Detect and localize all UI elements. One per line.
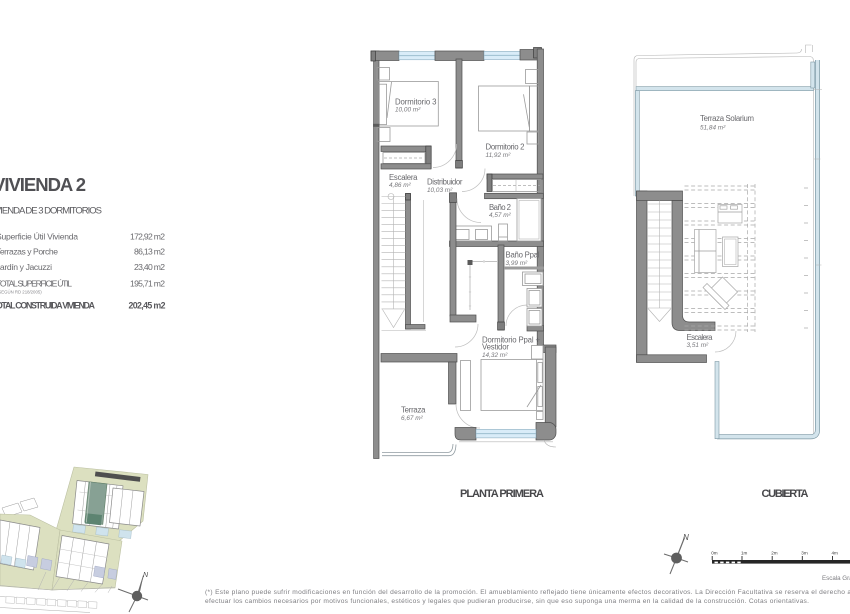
svg-text:3,51 m²: 3,51 m² bbox=[687, 342, 710, 349]
svg-text:Escala Gráfica: Escala Gráfica bbox=[822, 575, 850, 582]
svg-text:VIVIENDA DE 3 DORMITORIOS: VIVIENDA DE 3 DORMITORIOS bbox=[0, 206, 102, 217]
svg-text:Escalera: Escalera bbox=[687, 333, 714, 342]
svg-text:(*) Este plano puede sufrir mo: (*) Este plano puede sufrir modificacion… bbox=[205, 589, 850, 596]
svg-text:23,40 m2: 23,40 m2 bbox=[134, 262, 165, 272]
svg-text:TOTAL CONSTRUIDA VIVIENDA: TOTAL CONSTRUIDA VIVIENDA bbox=[0, 301, 96, 311]
svg-text:2m: 2m bbox=[771, 551, 778, 556]
svg-text:86,13 m2: 86,13 m2 bbox=[134, 247, 165, 257]
svg-text:202,45 m2: 202,45 m2 bbox=[129, 301, 166, 311]
svg-text:TOTAL SUPERFICIE ÚTIL: TOTAL SUPERFICIE ÚTIL bbox=[0, 279, 72, 289]
svg-text:172,92 m2: 172,92 m2 bbox=[130, 232, 165, 242]
svg-text:N: N bbox=[683, 533, 689, 542]
svg-text:Jardín y Jacuzzi: Jardín y Jacuzzi bbox=[0, 262, 52, 272]
svg-text:VIVIENDA 2: VIVIENDA 2 bbox=[0, 174, 86, 195]
svg-text:3m: 3m bbox=[801, 551, 808, 556]
svg-text:PLANTA PRIMERA: PLANTA PRIMERA bbox=[460, 488, 544, 500]
svg-text:6,67 m²: 6,67 m² bbox=[401, 415, 424, 422]
svg-text:Baño 2: Baño 2 bbox=[489, 203, 511, 212]
svg-text:Escalera: Escalera bbox=[389, 173, 418, 182]
svg-text:51,84 m²: 51,84 m² bbox=[700, 125, 726, 132]
svg-text:11,92 m²: 11,92 m² bbox=[486, 152, 512, 159]
svg-text:(SEGÚN RD 218/2005): (SEGÚN RD 218/2005) bbox=[0, 290, 42, 295]
svg-text:4,86 m²: 4,86 m² bbox=[389, 182, 412, 189]
svg-text:Terrazas y Porche: Terrazas y Porche bbox=[0, 247, 58, 257]
svg-text:14,32 m²: 14,32 m² bbox=[482, 352, 508, 359]
svg-text:10,00 m²: 10,00 m² bbox=[395, 107, 421, 114]
svg-text:Dormitorio 2: Dormitorio 2 bbox=[486, 143, 525, 152]
svg-text:Vestidor: Vestidor bbox=[482, 343, 509, 352]
svg-text:4,57 m²: 4,57 m² bbox=[489, 212, 512, 219]
svg-text:0m: 0m bbox=[711, 551, 718, 556]
svg-text:10,03 m²: 10,03 m² bbox=[427, 187, 453, 194]
svg-text:efectuar los cambios necesario: efectuar los cambios necesarios por moti… bbox=[205, 598, 809, 605]
svg-text:Baño Ppal: Baño Ppal bbox=[506, 251, 540, 260]
svg-text:Terraza: Terraza bbox=[401, 406, 426, 415]
svg-text:Dormitorio 3: Dormitorio 3 bbox=[395, 98, 437, 107]
svg-text:Terraza Solarium: Terraza Solarium bbox=[700, 114, 754, 123]
svg-text:3,99 m²: 3,99 m² bbox=[506, 260, 529, 267]
svg-text:CUBIERTA: CUBIERTA bbox=[762, 488, 809, 500]
svg-text:Distribuidor: Distribuidor bbox=[427, 178, 463, 187]
svg-text:195,71 m2: 195,71 m2 bbox=[130, 279, 165, 289]
svg-text:1m: 1m bbox=[741, 551, 748, 556]
svg-text:Superficie Útil Vivienda: Superficie Útil Vivienda bbox=[0, 232, 78, 242]
svg-text:4m: 4m bbox=[832, 551, 839, 556]
